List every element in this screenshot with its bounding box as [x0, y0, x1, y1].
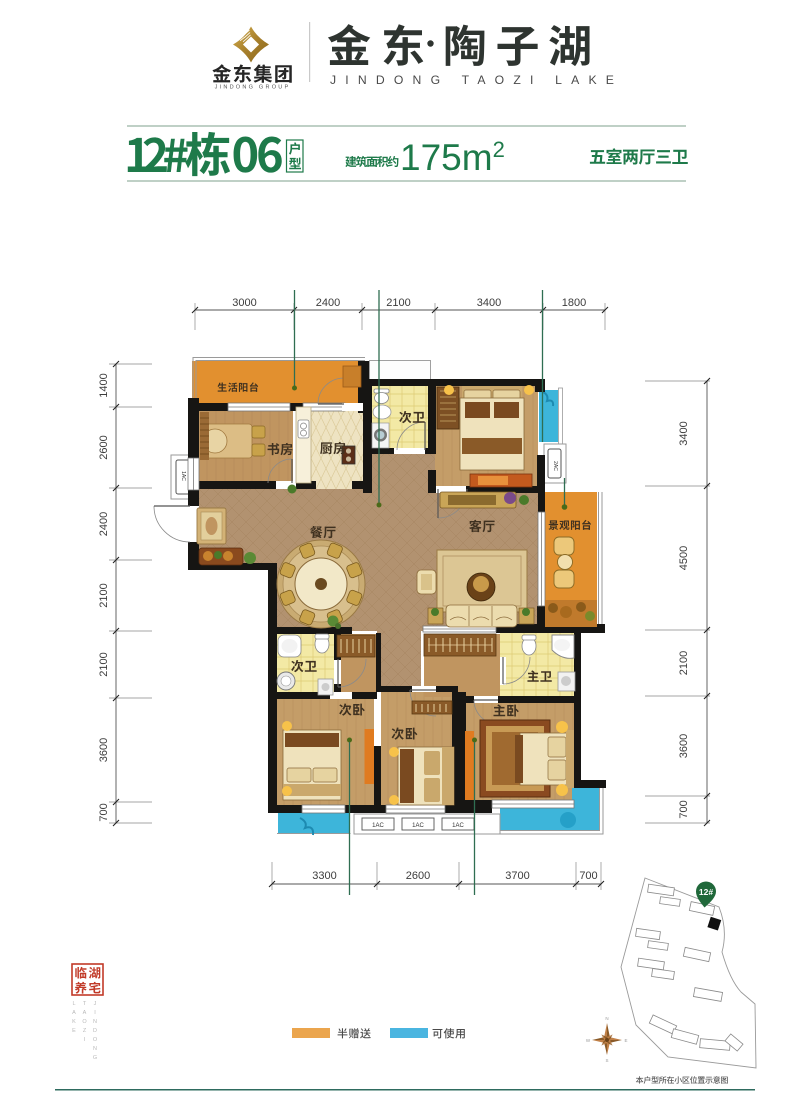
svg-text:700: 700	[579, 870, 597, 882]
svg-text:3300: 3300	[312, 870, 336, 882]
svg-text:2400: 2400	[98, 512, 110, 536]
svg-text:N: N	[93, 1019, 97, 1025]
svg-text:3600: 3600	[678, 734, 690, 758]
svg-text:1800: 1800	[562, 297, 586, 309]
svg-text:Z: Z	[83, 1028, 87, 1034]
svg-text:1AC: 1AC	[180, 471, 186, 481]
svg-text:2100: 2100	[98, 583, 110, 607]
svg-text:A: A	[83, 1010, 87, 1016]
svg-text:E: E	[624, 1038, 627, 1043]
svg-text:2100: 2100	[678, 651, 690, 675]
svg-text:2600: 2600	[406, 870, 430, 882]
svg-text:12#: 12#	[699, 887, 713, 897]
svg-text:W: W	[586, 1038, 591, 1043]
svg-text:2100: 2100	[98, 652, 110, 676]
svg-text:4500: 4500	[678, 546, 690, 570]
svg-text:T: T	[83, 1001, 87, 1007]
svg-text:2AC: 2AC	[552, 461, 558, 471]
svg-text:2600: 2600	[98, 435, 110, 459]
svg-text:K: K	[72, 1019, 76, 1025]
svg-text:3400: 3400	[477, 297, 501, 309]
svg-text:A: A	[72, 1010, 76, 1016]
svg-text:2400: 2400	[316, 297, 340, 309]
svg-text:700: 700	[98, 803, 110, 821]
svg-text:175m2: 175m2	[400, 137, 505, 178]
svg-text:O: O	[93, 1037, 98, 1043]
svg-text:2100: 2100	[386, 297, 410, 309]
svg-text:3700: 3700	[505, 870, 529, 882]
svg-text:I: I	[84, 1037, 86, 1043]
svg-text:1AC: 1AC	[452, 823, 464, 829]
svg-text:JINDONG GROUP: JINDONG GROUP	[215, 85, 291, 91]
svg-text:O: O	[82, 1019, 87, 1025]
svg-text:3400: 3400	[678, 421, 690, 445]
svg-text:3000: 3000	[232, 297, 256, 309]
svg-text:E: E	[72, 1028, 76, 1034]
svg-text:N: N	[605, 1016, 608, 1021]
svg-text:JINDONG TAOZI LAKE: JINDONG TAOZI LAKE	[330, 73, 623, 87]
svg-text:N: N	[93, 1046, 97, 1052]
svg-text:1AC: 1AC	[412, 823, 424, 829]
svg-text:S: S	[605, 1058, 608, 1063]
svg-text:I: I	[94, 1010, 96, 1016]
svg-text:G: G	[93, 1055, 97, 1061]
svg-text:L: L	[72, 1001, 75, 1007]
svg-text:700: 700	[678, 800, 690, 818]
svg-text:3600: 3600	[98, 738, 110, 762]
svg-text:J: J	[94, 1001, 97, 1007]
svg-text:1400: 1400	[98, 373, 110, 397]
svg-text:1AC: 1AC	[372, 823, 384, 829]
svg-text:D: D	[93, 1028, 97, 1034]
